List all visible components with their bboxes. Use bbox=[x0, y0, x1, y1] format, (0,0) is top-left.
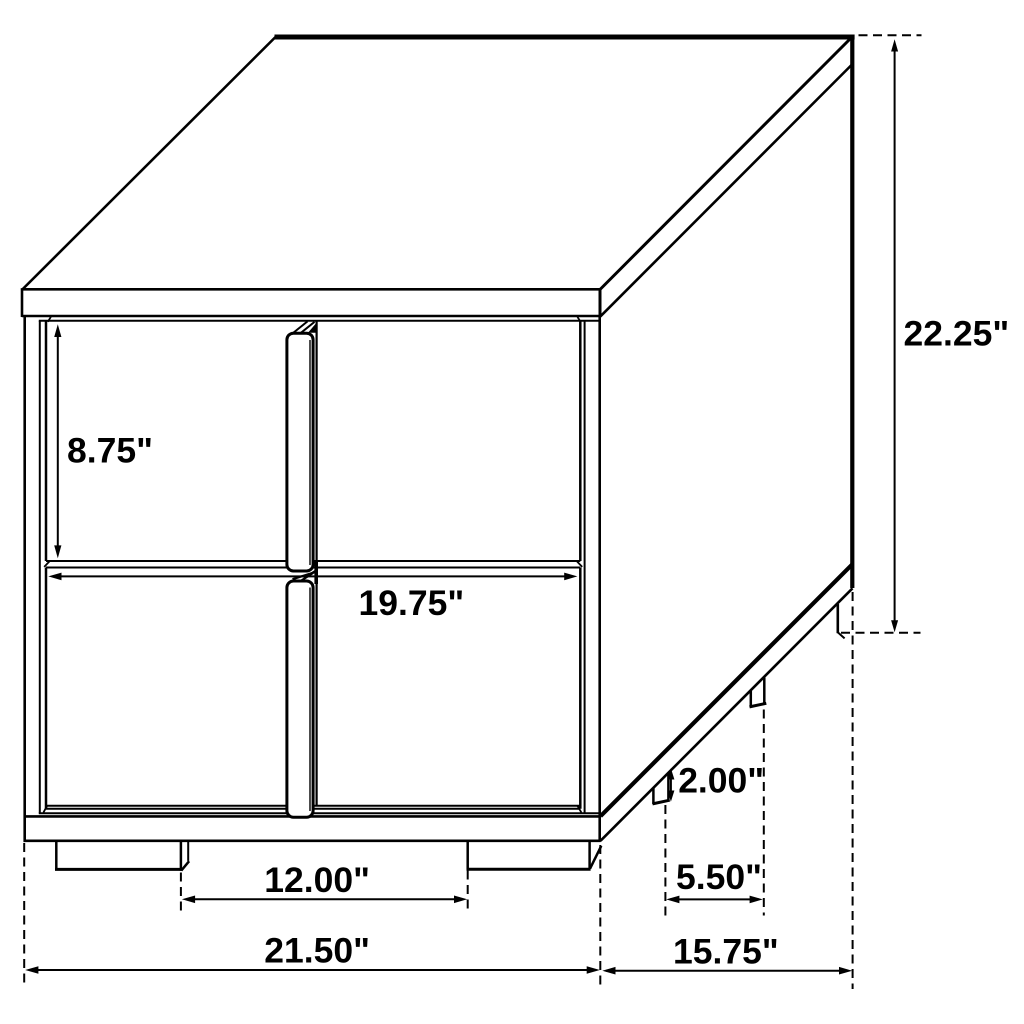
svg-text:21.50": 21.50" bbox=[264, 931, 370, 971]
svg-text:5.50": 5.50" bbox=[676, 857, 762, 897]
svg-text:22.25": 22.25" bbox=[904, 314, 1010, 354]
svg-text:19.75": 19.75" bbox=[359, 583, 465, 623]
svg-text:2.00": 2.00" bbox=[678, 761, 764, 801]
svg-text:8.75": 8.75" bbox=[67, 430, 153, 470]
svg-text:15.75": 15.75" bbox=[673, 932, 779, 972]
svg-text:12.00": 12.00" bbox=[264, 860, 370, 900]
